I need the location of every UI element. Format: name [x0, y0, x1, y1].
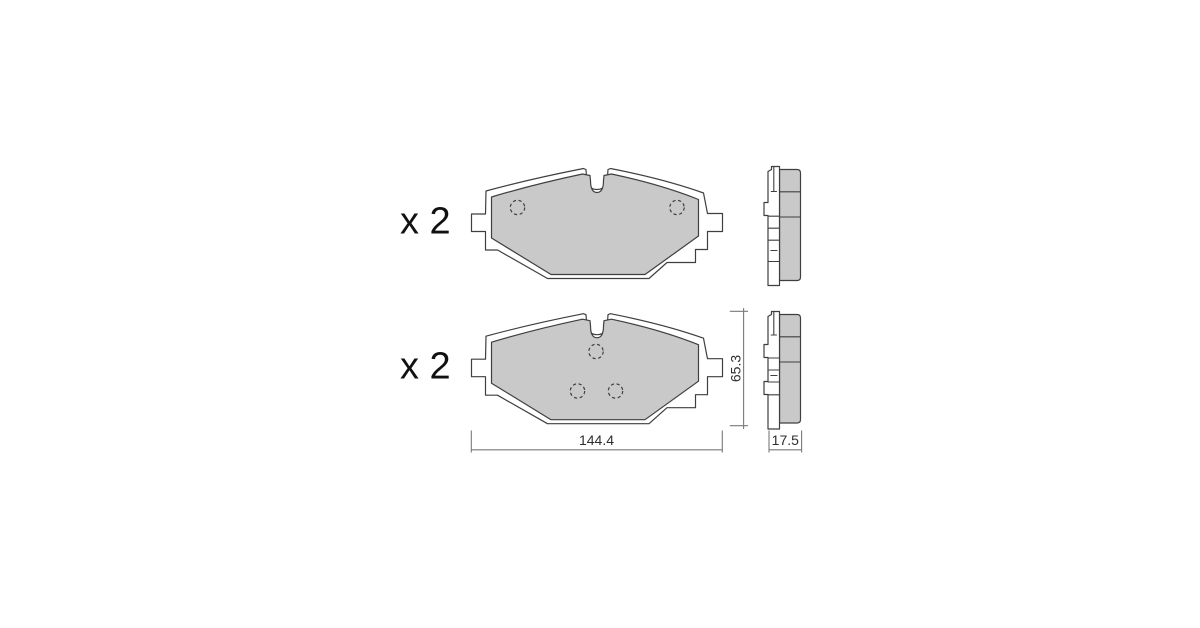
dimension-height-value: 65.3	[728, 355, 744, 382]
quantity-label-bottom: x 2	[400, 346, 451, 388]
dimension-width-value: 144.4	[579, 432, 614, 448]
friction-material-side	[780, 315, 801, 424]
quantity-label-top: x 2	[400, 201, 451, 243]
front-view-pad-top	[472, 169, 723, 279]
dimension-width: 144.4	[471, 431, 722, 453]
friction-material-side	[780, 170, 801, 281]
dimension-thickness-value: 17.5	[772, 432, 799, 448]
side-view-pad-top	[764, 167, 801, 286]
drawing-sheet: x 2 x 2	[0, 0, 1200, 628]
side-view-pad-bottom	[764, 312, 801, 430]
dimension-thickness: 17.5	[769, 431, 802, 453]
dimension-height: 65.3	[728, 308, 749, 429]
backplate-side-outline	[764, 167, 780, 286]
brake-pad-diagram: x 2 x 2	[0, 0, 1200, 628]
front-view-pad-bottom	[472, 314, 723, 424]
